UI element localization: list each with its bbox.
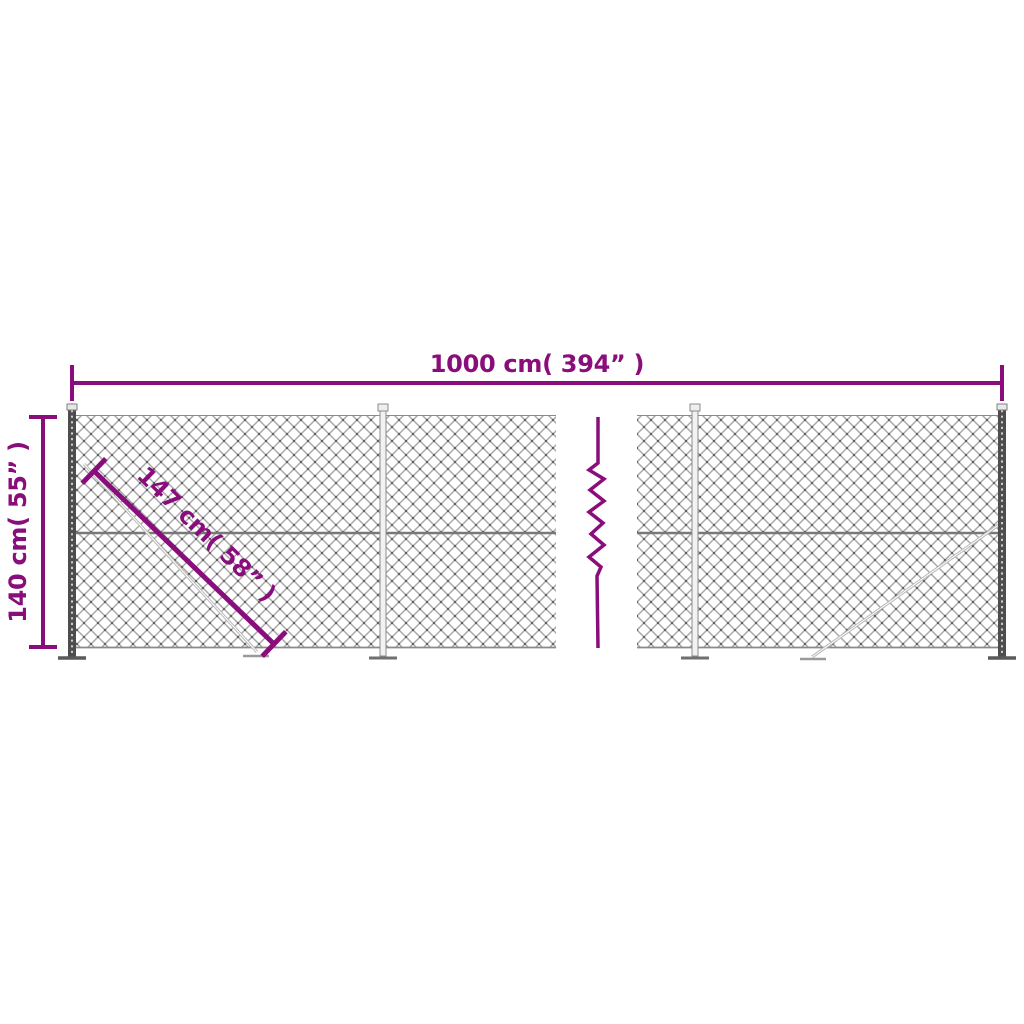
width-dimension: 1000 cm( 394” ): [72, 350, 1002, 401]
height-dimension: 140 cm( 55” ): [4, 417, 57, 647]
fence-diagram-canvas: 1000 cm( 394” ) 140 cm( 55” ) 147 cm( 58…: [0, 0, 1024, 1024]
post-cap: [997, 404, 1007, 410]
post-cap: [690, 404, 700, 411]
fence-section-right: [637, 404, 1016, 659]
product-dimension-diagram: 1000 cm( 394” ) 140 cm( 55” ) 147 cm( 58…: [0, 0, 1024, 1024]
break-zigzag-line: [589, 417, 604, 648]
post-cap: [67, 404, 77, 410]
height-dimension-label: 140 cm( 55” ): [4, 441, 32, 623]
post-cap: [378, 404, 388, 411]
width-dimension-label: 1000 cm( 394” ): [430, 350, 644, 378]
fence-section-left: [58, 404, 556, 658]
